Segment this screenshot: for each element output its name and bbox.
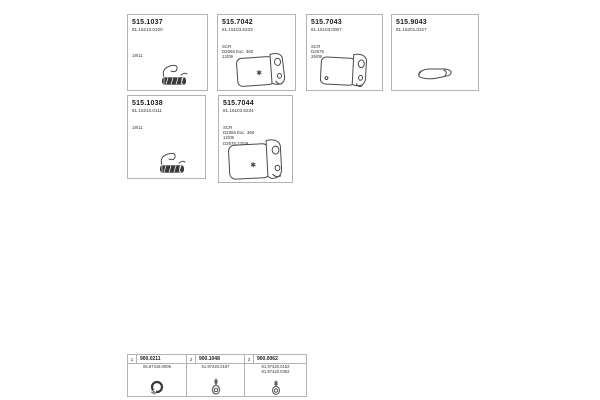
oe-line: 81.97420.0362: [245, 370, 306, 375]
flex-pipe-icon: [152, 151, 192, 175]
catalog-page: 515.1037 81.15210.0100 19/11 515.7042 81…: [0, 0, 600, 400]
part-number: 515.7044: [223, 99, 288, 108]
part-box-515-9043: 515.9043 81.15201.0227: [391, 14, 479, 91]
notes: 19/11: [132, 125, 201, 130]
accessory-header: 2 900.1048: [187, 355, 244, 364]
oe-number: 81.15103.0067: [311, 27, 378, 33]
oe-number: 81.15210.0111: [132, 108, 201, 114]
accessory-cell-3: 3 900.0062 81.97420.0152 81.97420.0362: [244, 355, 306, 396]
accessory-index: 3: [245, 355, 254, 363]
oe-line: 51.97420.0187: [187, 365, 244, 370]
part-box-515-1038: 515.1038 81.15210.0111 19/11: [127, 95, 206, 179]
part-number: 515.1037: [132, 18, 203, 27]
muffler-icon: [317, 49, 373, 89]
oe-number: 81.15201.0227: [396, 27, 474, 33]
part-number: 515.1038: [132, 99, 201, 108]
note-line: 19/11: [132, 53, 203, 58]
hanger-bolt-icon: [270, 380, 282, 395]
accessory-header: 3 900.0062: [245, 355, 306, 364]
hanger-bolt-icon: [210, 378, 222, 395]
muffler-large-icon: ✱: [226, 137, 290, 181]
flex-pipe-icon: [154, 63, 194, 87]
part-number: 515.7042: [222, 18, 291, 27]
part-box-515-1037: 515.1037 81.15210.0100 19/11: [127, 14, 208, 91]
part-box-515-7042: 515.7042 81.15103.6233 SCR D2066 Exc. 36…: [217, 14, 296, 91]
part-number: 515.9043: [396, 18, 474, 27]
accessory-header: 1 900.0211: [128, 355, 186, 364]
bent-pipe-icon: [413, 64, 457, 82]
note-line: 19/11: [132, 125, 201, 130]
accessory-index: 2: [187, 355, 196, 363]
oe-number: 81.15103.6233: [222, 27, 291, 33]
part-number: 515.7043: [311, 18, 378, 27]
oe-line: 06.67419.0006: [128, 365, 186, 370]
muffler-icon: ✱: [234, 49, 290, 89]
accessory-part-number: 900.1048: [196, 356, 220, 362]
oe-number: 81.15210.0100: [132, 27, 203, 33]
accessory-oe-numbers: 51.97420.0187: [187, 365, 244, 370]
part-box-515-7044: 515.7044 81.15103.6234 SCR D2066 Exc. 36…: [218, 95, 293, 183]
accessory-cell-2: 2 900.1048 51.97420.0187: [186, 355, 244, 396]
accessory-cell-1: 1 900.0211 06.67419.0006: [128, 355, 186, 396]
accessory-part-number: 900.0211: [137, 356, 161, 362]
star-mark: ✱: [256, 69, 263, 77]
accessories-table: 1 900.0211 06.67419.0006 2 900.1048: [127, 354, 307, 397]
clamp-icon: [149, 379, 165, 395]
accessory-index: 1: [128, 355, 137, 363]
notes: 19/11: [132, 53, 203, 58]
accessory-oe-numbers: 81.97420.0152 81.97420.0362: [245, 365, 306, 375]
accessory-part-number: 900.0062: [254, 356, 278, 362]
part-box-515-7043: 515.7043 81.15103.0067 SCR D2676 26/08: [306, 14, 383, 91]
oe-number: 81.15103.6234: [223, 108, 288, 114]
accessory-oe-numbers: 06.67419.0006: [128, 365, 186, 370]
star-mark: ✱: [250, 161, 256, 169]
